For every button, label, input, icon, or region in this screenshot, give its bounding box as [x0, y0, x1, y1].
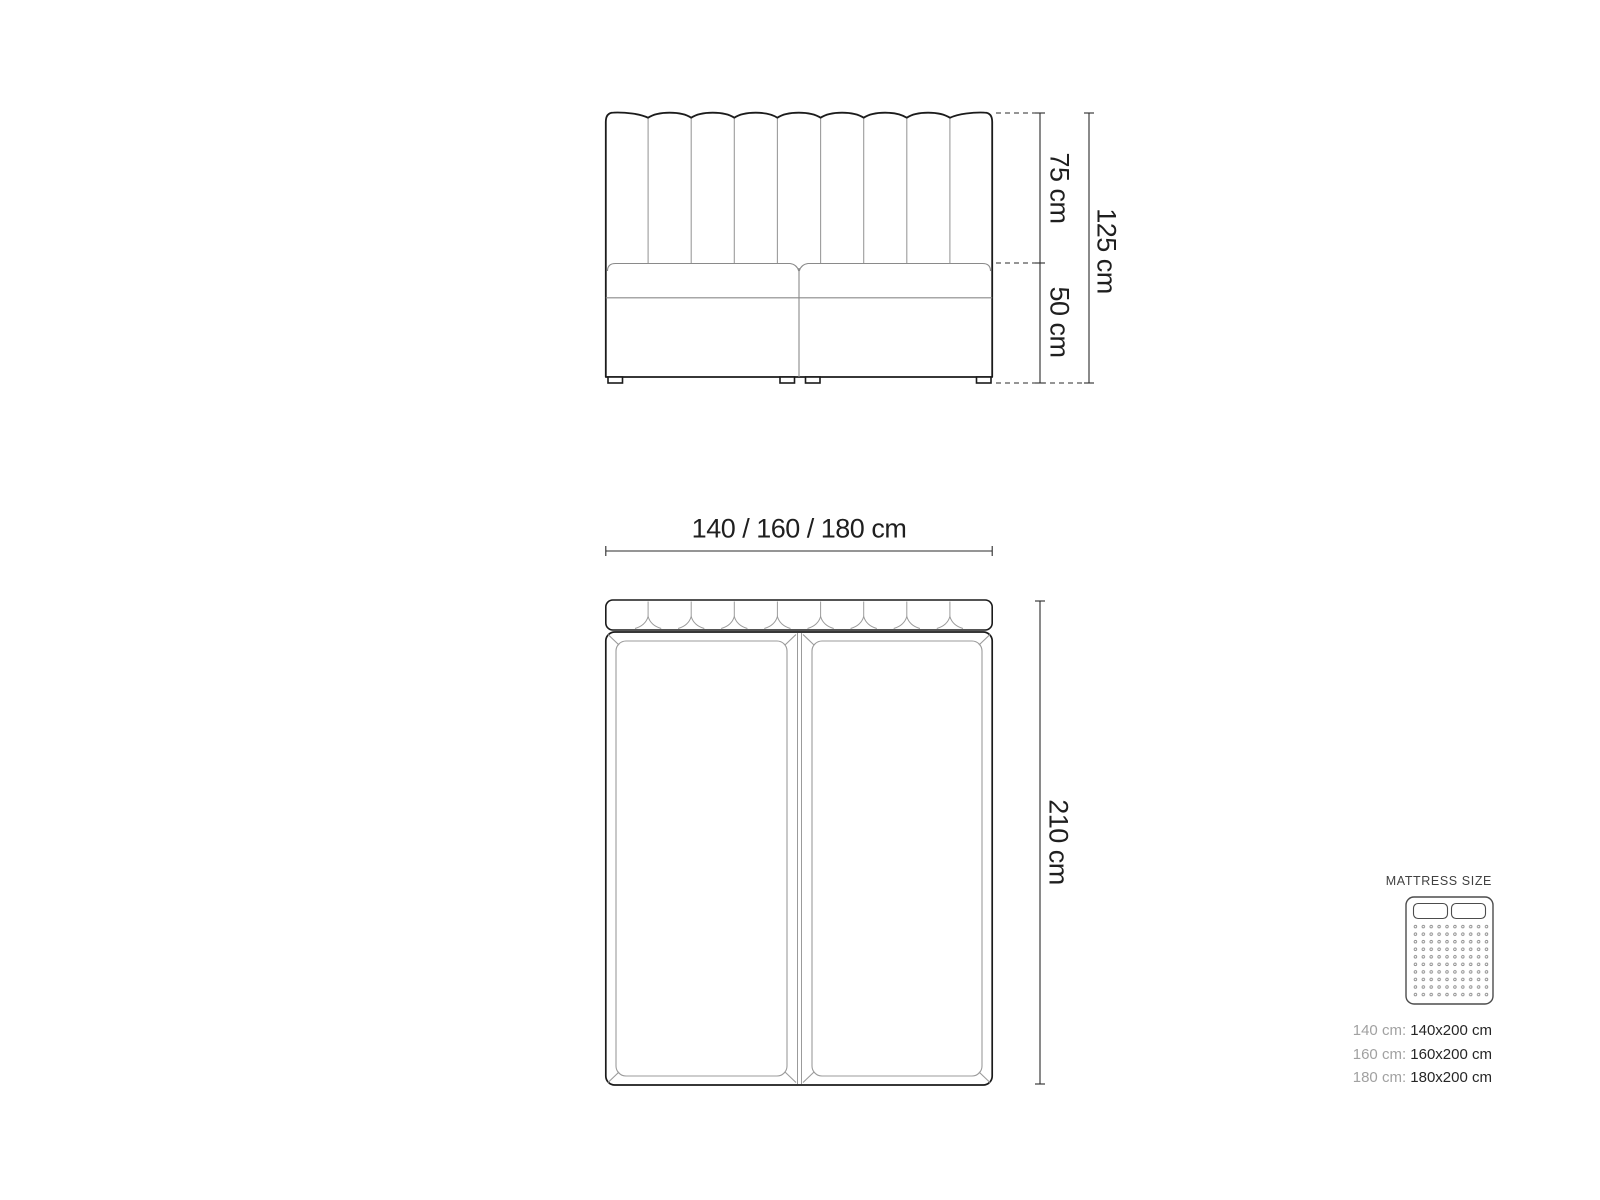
- legend-label: 180 cm:: [1353, 1069, 1406, 1086]
- base-height-label: 50 cm: [1044, 286, 1075, 357]
- mattress-size-icon: [1406, 897, 1493, 1004]
- total-height-label: 125 cm: [1091, 208, 1122, 294]
- legend-row-160: 160 cm: 160x200 cm: [1240, 1043, 1492, 1067]
- top-view-drawing: [606, 600, 992, 1085]
- legend-row-180: 180 cm: 180x200 cm: [1240, 1066, 1492, 1090]
- mattress-size-legend: 140 cm: 140x200 cm 160 cm: 160x200 cm 18…: [1240, 1019, 1492, 1090]
- headboard-height-label: 75 cm: [1044, 152, 1075, 223]
- width-options-label: 140 / 160 / 180 cm: [692, 514, 907, 545]
- mattress-size-title: MATTRESS SIZE: [1240, 874, 1492, 888]
- legend-row-140: 140 cm: 140x200 cm: [1240, 1019, 1492, 1043]
- legend-value: 180x200 cm: [1410, 1069, 1492, 1086]
- front-view-drawing: [606, 113, 992, 383]
- bed-dimension-diagram: 75 cm 50 cm 125 cm 140 / 160 / 180 cm 21…: [0, 0, 1600, 1200]
- legend-label: 140 cm:: [1353, 1022, 1406, 1039]
- legend-value: 140x200 cm: [1410, 1022, 1492, 1039]
- legend-label: 160 cm:: [1353, 1046, 1406, 1063]
- top-headboard-strip: [606, 600, 992, 630]
- legend-value: 160x200 cm: [1410, 1046, 1492, 1063]
- top-bed-frame: [606, 632, 992, 1085]
- mattress-tufting-dots: [1413, 924, 1491, 1000]
- length-label: 210 cm: [1043, 799, 1074, 885]
